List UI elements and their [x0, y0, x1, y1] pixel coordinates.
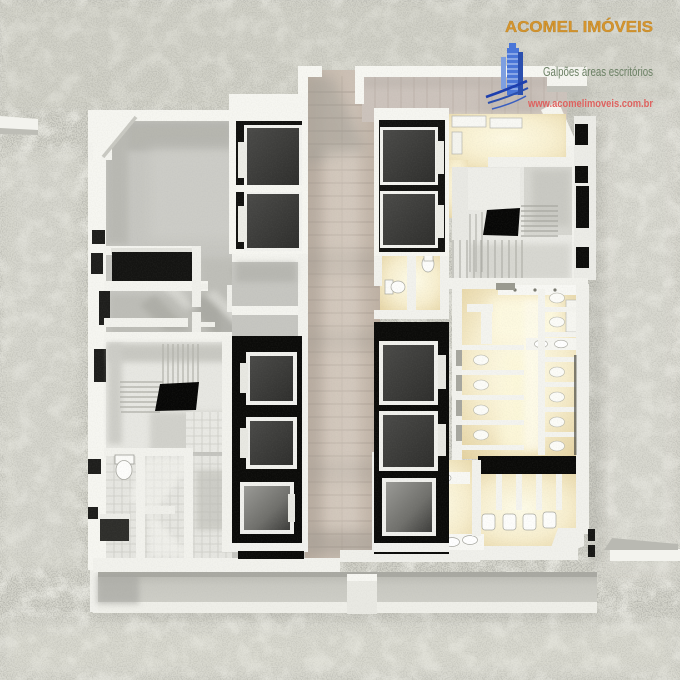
svg-text:Galpões áreas escritórios: Galpões áreas escritórios	[543, 65, 653, 79]
svg-text:www.acomelimoveis.com.br: www.acomelimoveis.com.br	[527, 98, 653, 110]
svg-text:ACOMEL IMÓVEIS: ACOMEL IMÓVEIS	[505, 17, 653, 36]
